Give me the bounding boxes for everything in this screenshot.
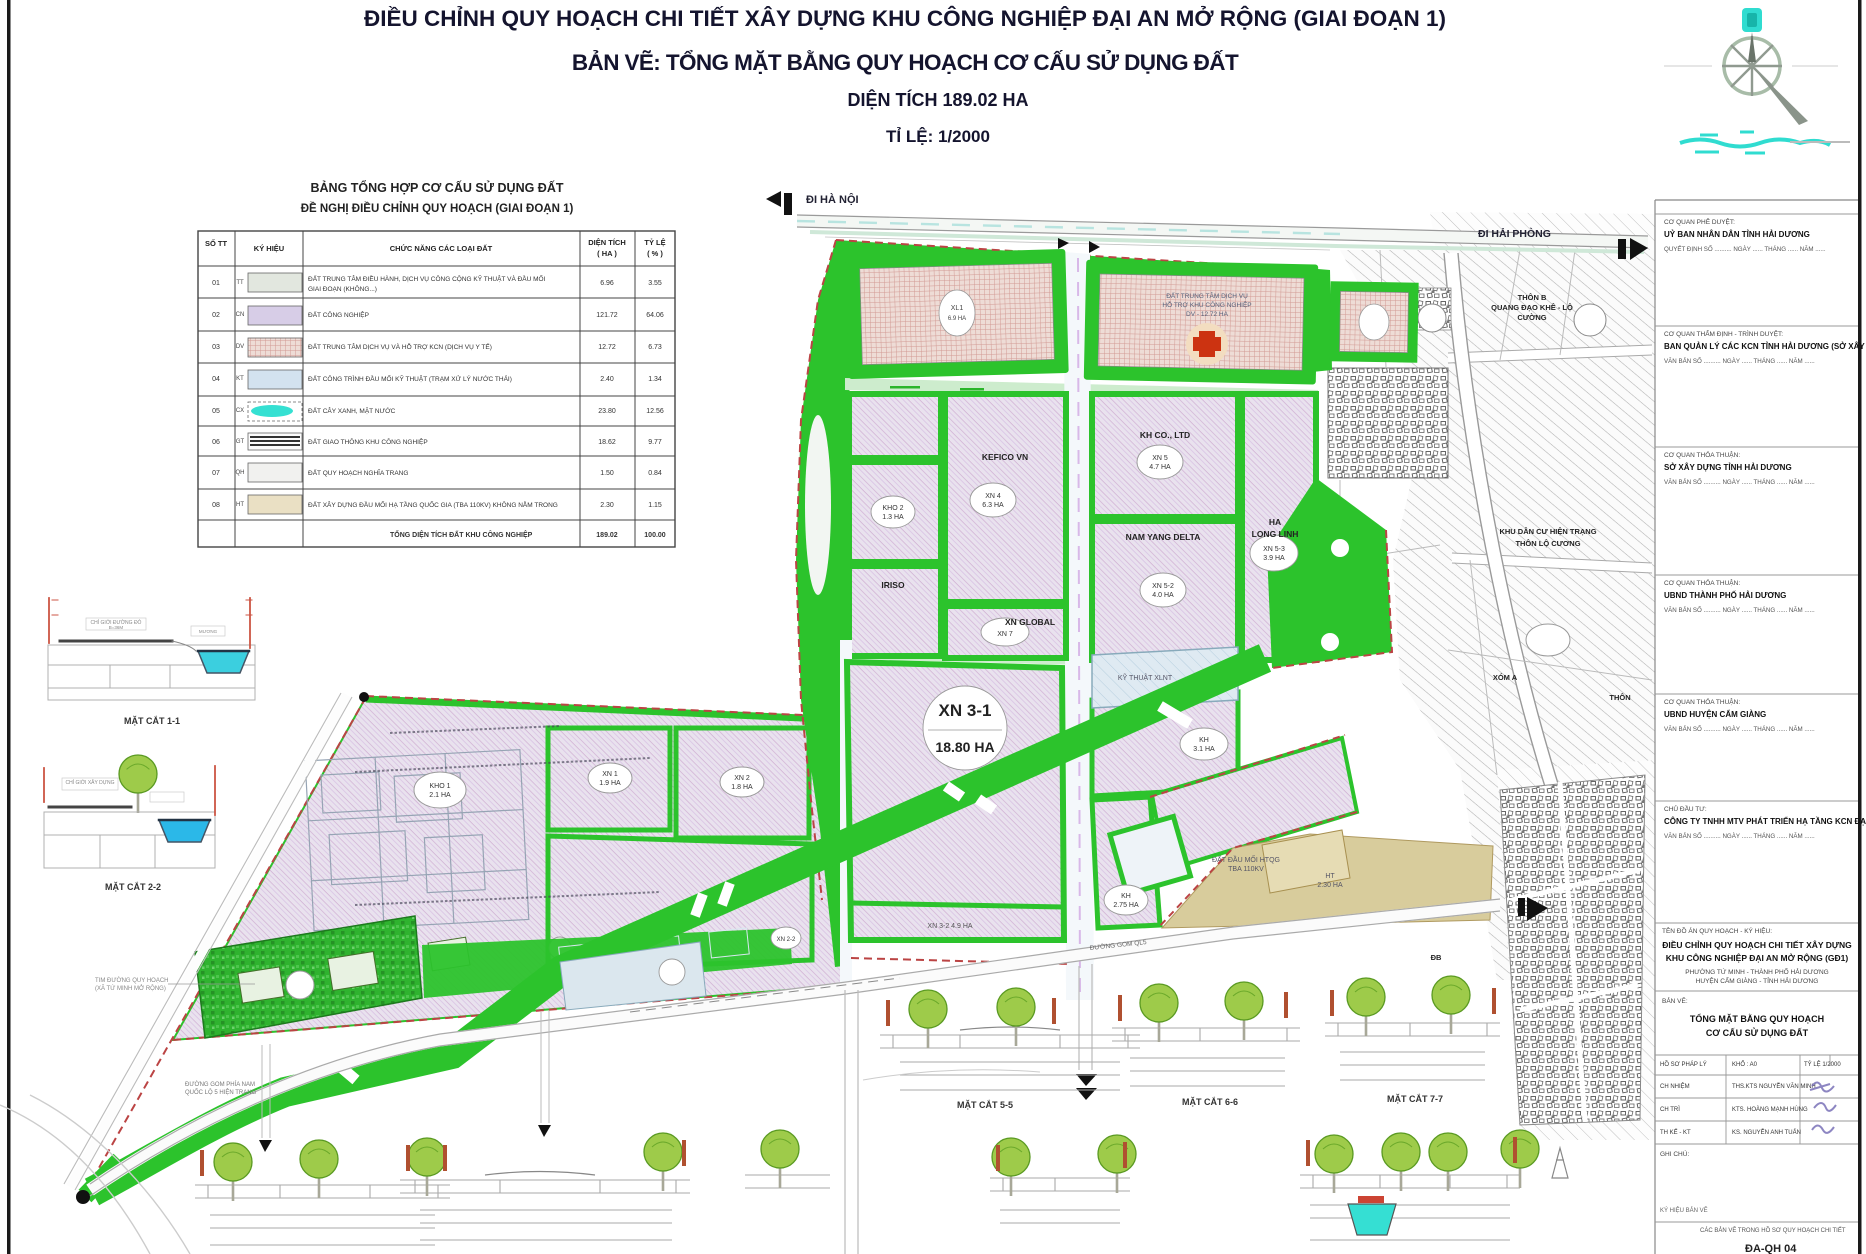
svg-text:VĂN BẢN SỐ .......... NGÀY ...: VĂN BẢN SỐ .......... NGÀY ...... THÁNG … [1664, 726, 1815, 733]
svg-text:TỔNG MẶT BẰNG QUY HOẠCH: TỔNG MẶT BẰNG QUY HOẠCH [1690, 1013, 1824, 1024]
svg-text:BẢN VẼ:: BẢN VẼ: [1662, 996, 1688, 1005]
svg-text:SỐ TT: SỐ TT [205, 238, 228, 248]
svg-text:1.34: 1.34 [648, 376, 662, 383]
svg-text:MẶT CẮT 1-1: MẶT CẮT 1-1 [124, 716, 180, 726]
svg-text:CƠ QUAN PHÊ DUYỆT:: CƠ QUAN PHÊ DUYỆT: [1664, 217, 1735, 226]
svg-text:CH NHIỆM: CH NHIỆM [1660, 1082, 1690, 1090]
svg-text:DV: DV [236, 344, 244, 350]
svg-text:ĐB: ĐB [1431, 953, 1442, 962]
svg-text:CH TRÌ: CH TRÌ [1660, 1106, 1680, 1113]
svg-text:KHO 2: KHO 2 [882, 505, 903, 512]
svg-text:9.77: 9.77 [648, 439, 662, 446]
svg-text:CƠ QUAN THỎA THUẬN:: CƠ QUAN THỎA THUẬN: [1664, 450, 1740, 459]
svg-text:VĂN BẢN SỐ .......... NGÀY ...: VĂN BẢN SỐ .......... NGÀY ...... THÁNG … [1664, 833, 1815, 840]
svg-text:XN 7: XN 7 [997, 631, 1013, 638]
svg-text:KHỔ : A0: KHỔ : A0 [1732, 1061, 1758, 1068]
svg-text:1.3 HA: 1.3 HA [882, 514, 904, 521]
svg-text:VĂN BẢN SỐ .......... NGÀY ...: VĂN BẢN SỐ .......... NGÀY ...... THÁNG … [1664, 479, 1815, 486]
svg-text:KEFICO VN: KEFICO VN [982, 452, 1028, 462]
svg-text:ĐƯỜNG GOM PHÍA NAM: ĐƯỜNG GOM PHÍA NAM [185, 1081, 255, 1088]
svg-text:12.56: 12.56 [646, 408, 664, 415]
svg-text:04: 04 [212, 376, 220, 383]
svg-text:BẢNG TỔNG HỢP CƠ CẤU SỬ DỤNG Đ: BẢNG TỔNG HỢP CƠ CẤU SỬ DỤNG ĐẤT [311, 180, 564, 195]
svg-text:TỈ LỆ: 1/2000: TỈ LỆ: 1/2000 [886, 127, 990, 146]
svg-text:CN: CN [236, 312, 245, 318]
svg-text:XN 2: XN 2 [734, 775, 750, 782]
svg-text:1.15: 1.15 [648, 502, 662, 509]
svg-text:CX: CX [236, 408, 244, 414]
svg-text:KỸ THUẬT XLNT: KỸ THUẬT XLNT [1118, 673, 1173, 682]
svg-text:2.30 HA: 2.30 HA [1317, 882, 1343, 889]
svg-text:CHỈ GIỚI XÂY DỰNG: CHỈ GIỚI XÂY DỰNG [65, 779, 114, 786]
svg-text:ĐIỀU CHỈNH QUY HOẠCH CHI TIẾT: ĐIỀU CHỈNH QUY HOẠCH CHI TIẾT XÂY DỰNG K… [364, 6, 1446, 31]
svg-text:CƠ CẤU SỬ DỤNG ĐẤT: CƠ CẤU SỬ DỤNG ĐẤT [1706, 1027, 1809, 1038]
svg-text:UBND THÀNH PHỐ HẢI DƯƠNG: UBND THÀNH PHỐ HẢI DƯƠNG [1664, 590, 1786, 600]
svg-text:KH: KH [1199, 737, 1209, 744]
svg-text:GT: GT [236, 439, 245, 445]
svg-text:HUYỆN CẨM GIÀNG - TỈNH HẢI DƯƠ: HUYỆN CẨM GIÀNG - TỈNH HẢI DƯƠNG [1696, 976, 1819, 985]
svg-text:XN GLOBAL: XN GLOBAL [1005, 617, 1055, 627]
svg-text:TIM ĐƯỜNG QUY HOẠCH: TIM ĐƯỜNG QUY HOẠCH [95, 977, 169, 984]
svg-text:( HA ): ( HA ) [597, 249, 617, 258]
svg-text:KHU DÂN CƯ HIỆN TRẠNG: KHU DÂN CƯ HIỆN TRẠNG [1499, 527, 1596, 536]
svg-text:DIỆN TÍCH 189.02 HA: DIỆN TÍCH 189.02 HA [847, 89, 1028, 110]
svg-text:23.80: 23.80 [598, 408, 616, 415]
svg-text:BẢN VẼ: TỔNG MẶT BẰNG QUY HOẠC: BẢN VẼ: TỔNG MẶT BẰNG QUY HOẠCH CƠ CẤU S… [572, 50, 1239, 75]
svg-text:2.40: 2.40 [600, 376, 614, 383]
svg-text:KH: KH [1121, 893, 1131, 900]
svg-text:02: 02 [212, 312, 220, 319]
svg-text:01: 01 [212, 280, 220, 287]
svg-text:QUANG ĐẠO KHÊ - LỘ: QUANG ĐẠO KHÊ - LỘ [1491, 303, 1573, 312]
svg-text:THÔN B: THÔN B [1518, 293, 1547, 302]
svg-text:HỖ TRỢ KHU CÔNG NGHIỆP: HỖ TRỢ KHU CÔNG NGHIỆP [1162, 300, 1251, 309]
svg-text:CÔNG TY TNHH MTV PHÁT TRIỂN HẠ: CÔNG TY TNHH MTV PHÁT TRIỂN HẠ TẦNG KCN … [1664, 816, 1866, 826]
svg-text:CHỨC NĂNG CÁC LOẠI ĐẤT: CHỨC NĂNG CÁC LOẠI ĐẤT [390, 243, 493, 253]
svg-text:08: 08 [212, 502, 220, 509]
svg-text:(XÃ TỨ MINH MỞ RỘNG): (XÃ TỨ MINH MỞ RỘNG) [95, 985, 166, 992]
svg-text:05: 05 [212, 408, 220, 415]
svg-text:2.30: 2.30 [600, 502, 614, 509]
svg-text:XL1: XL1 [951, 305, 964, 312]
svg-text:KHU CÔNG NGHIỆP ĐẠI AN MỞ RỘNG: KHU CÔNG NGHIỆP ĐẠI AN MỞ RỘNG (GĐ1) [1666, 952, 1849, 963]
svg-text:THÔN LỘ CƯƠNG: THÔN LỘ CƯƠNG [1515, 539, 1580, 548]
svg-text:GIAI ĐOẠN (KHÔNG...): GIAI ĐOẠN (KHÔNG...) [308, 284, 377, 293]
svg-text:CƯỜNG: CƯỜNG [1517, 313, 1546, 322]
svg-text:XN 5: XN 5 [1152, 455, 1168, 462]
svg-text:KH CO., LTD: KH CO., LTD [1140, 430, 1190, 440]
svg-text:VĂN BẢN SỐ .......... NGÀY ...: VĂN BẢN SỐ .......... NGÀY ...... THÁNG … [1664, 607, 1815, 614]
svg-text:ĐI HÀ NỘI: ĐI HÀ NỘI [806, 193, 859, 206]
svg-text:121.72: 121.72 [596, 312, 618, 319]
svg-text:XN 2-2: XN 2-2 [777, 937, 796, 943]
svg-text:4.7 HA: 4.7 HA [1149, 464, 1171, 471]
svg-text:ĐỀ NGHỊ ĐIỀU CHỈNH QUY HOẠCH (: ĐỀ NGHỊ ĐIỀU CHỈNH QUY HOẠCH (GIAI ĐOẠN … [301, 202, 574, 215]
svg-text:TỶ LỆ 1/2000: TỶ LỆ 1/2000 [1804, 1060, 1841, 1068]
svg-text:NAM YANG DELTA: NAM YANG DELTA [1126, 532, 1201, 542]
svg-text:18.80 HA: 18.80 HA [935, 739, 994, 755]
svg-text:DIỆN TÍCH: DIỆN TÍCH [588, 238, 626, 247]
svg-text:DV - 12.72 HA: DV - 12.72 HA [1186, 311, 1229, 318]
svg-text:KT: KT [236, 376, 244, 382]
svg-text:HT: HT [236, 502, 244, 508]
svg-text:HỒ SƠ PHÁP LÝ: HỒ SƠ PHÁP LÝ [1660, 1061, 1707, 1068]
svg-text:B=36M: B=36M [109, 625, 124, 630]
svg-text:6.73: 6.73 [648, 344, 662, 351]
svg-text:TỶ LỆ: TỶ LỆ [644, 238, 665, 247]
svg-text:GHI CHÚ:: GHI CHÚ: [1660, 1149, 1689, 1158]
svg-text:3.1 HA: 3.1 HA [1193, 746, 1215, 753]
svg-text:THS.KTS NGUYỄN VĂN MINH: THS.KTS NGUYỄN VĂN MINH [1732, 1083, 1816, 1090]
svg-text:0.84: 0.84 [648, 470, 662, 477]
svg-text:64.06: 64.06 [646, 312, 664, 319]
svg-text:MẶT CẮT 7-7: MẶT CẮT 7-7 [1387, 1094, 1443, 1104]
svg-text:SỞ XÂY DỰNG TỈNH HẢI DƯƠNG: SỞ XÂY DỰNG TỈNH HẢI DƯƠNG [1664, 463, 1792, 472]
svg-text:18.62: 18.62 [598, 439, 616, 446]
svg-text:IRISO: IRISO [881, 580, 905, 590]
svg-text:6.3 HA: 6.3 HA [982, 502, 1004, 509]
svg-text:CƠ QUAN THỎA THUẬN:: CƠ QUAN THỎA THUẬN: [1664, 697, 1740, 706]
svg-text:KHO 1: KHO 1 [429, 783, 450, 790]
svg-text:MƯƠNG: MƯƠNG [199, 629, 218, 634]
svg-text:QUỐC LỘ 5 HIỆN TRẠNG: QUỐC LỘ 5 HIỆN TRẠNG [185, 1088, 257, 1096]
svg-text:KÝ HIỆU BẢN VẼ: KÝ HIỆU BẢN VẼ [1660, 1206, 1708, 1214]
svg-text:CƠ QUAN THỎA THUẬN:: CƠ QUAN THỎA THUẬN: [1664, 578, 1740, 587]
svg-text:1.8 HA: 1.8 HA [731, 784, 753, 791]
svg-text:4.0 HA: 4.0 HA [1152, 592, 1174, 599]
svg-text:07: 07 [212, 470, 220, 477]
svg-text:THÔN: THÔN [1609, 693, 1630, 702]
svg-text:XN 4: XN 4 [985, 493, 1001, 500]
svg-text:LONG LINH: LONG LINH [1252, 529, 1299, 539]
svg-text:3.9 HA: 3.9 HA [1263, 555, 1285, 562]
svg-text:1.9 HA: 1.9 HA [599, 780, 621, 787]
svg-text:BAN QUẢN LÝ CÁC KCN TỈNH HẢI D: BAN QUẢN LÝ CÁC KCN TỈNH HẢI DƯƠNG (SỞ X… [1664, 342, 1866, 351]
svg-text:03: 03 [212, 344, 220, 351]
svg-text:3.55: 3.55 [648, 280, 662, 287]
svg-text:TH KẾ - KT: TH KẾ - KT [1660, 1129, 1691, 1136]
svg-text:2.75 HA: 2.75 HA [1113, 902, 1139, 909]
svg-text:ĐA-QH 04: ĐA-QH 04 [1745, 1243, 1797, 1254]
svg-text:100.00: 100.00 [644, 532, 666, 539]
svg-text:( % ): ( % ) [647, 249, 663, 258]
svg-text:6.9 HA: 6.9 HA [948, 316, 966, 322]
svg-text:KÝ HIỆU: KÝ HIỆU [254, 244, 284, 253]
svg-text:HA: HA [1269, 517, 1281, 527]
svg-text:CƠ QUAN THẨM ĐỊNH - TRÌNH DUYỆ: CƠ QUAN THẨM ĐỊNH - TRÌNH DUYỆT: [1664, 329, 1783, 338]
svg-text:ĐI HẢI PHÒNG: ĐI HẢI PHÒNG [1478, 227, 1551, 240]
svg-text:MẶT CẮT 6-6: MẶT CẮT 6-6 [1182, 1097, 1238, 1107]
svg-text:UỶ BAN NHÂN DÂN TỈNH HẢI DƯƠNG: UỶ BAN NHÂN DÂN TỈNH HẢI DƯƠNG [1664, 230, 1810, 239]
svg-text:XN 3-1: XN 3-1 [939, 701, 992, 720]
svg-text:KTS. HOÀNG MẠNH HÙNG: KTS. HOÀNG MẠNH HÙNG [1732, 1106, 1808, 1113]
svg-text:ĐIỀU CHỈNH QUY HOẠCH CHI TIẾT: ĐIỀU CHỈNH QUY HOẠCH CHI TIẾT XÂY DỰNG [1662, 939, 1852, 950]
svg-text:HT: HT [1325, 873, 1335, 880]
svg-text:2.1 HA: 2.1 HA [429, 792, 451, 799]
svg-text:06: 06 [212, 439, 220, 446]
svg-text:VĂN BẢN SỐ .......... NGÀY ...: VĂN BẢN SỐ .......... NGÀY ...... THÁNG … [1664, 358, 1815, 365]
svg-text:XÓM A: XÓM A [1493, 673, 1518, 682]
svg-text:6.96: 6.96 [600, 280, 614, 287]
svg-text:189.02: 189.02 [596, 532, 618, 539]
svg-text:QUYẾT ĐỊNH SỐ .......... NGÀY: QUYẾT ĐỊNH SỐ .......... NGÀY ...... THÁ… [1664, 246, 1826, 253]
svg-text:XN 5-3: XN 5-3 [1263, 546, 1285, 553]
svg-text:1.50: 1.50 [600, 470, 614, 477]
svg-text:KS. NGUYỄN ANH TUẤN: KS. NGUYỄN ANH TUẤN [1732, 1129, 1801, 1136]
svg-text:MẶT CẮT 5-5: MẶT CẮT 5-5 [957, 1100, 1013, 1110]
svg-text:MẶT CẮT 2-2: MẶT CẮT 2-2 [105, 882, 161, 892]
svg-text:TT: TT [236, 280, 244, 286]
svg-text:QH: QH [236, 470, 245, 476]
svg-text:UBND HUYỆN CẨM GIÀNG: UBND HUYỆN CẨM GIÀNG [1664, 710, 1766, 719]
svg-text:XN 3-2 4.9 HA: XN 3-2 4.9 HA [927, 923, 972, 930]
svg-text:XN 1: XN 1 [602, 771, 618, 778]
svg-text:CÁC BẢN VẼ TRONG HỒ SƠ QUY HOẠ: CÁC BẢN VẼ TRONG HỒ SƠ QUY HOẠCH CHI TIẾ… [1700, 1227, 1846, 1234]
svg-text:12.72: 12.72 [598, 344, 616, 351]
svg-text:TBA 110KV: TBA 110KV [1228, 866, 1264, 873]
svg-text:XN 5-2: XN 5-2 [1152, 583, 1174, 590]
